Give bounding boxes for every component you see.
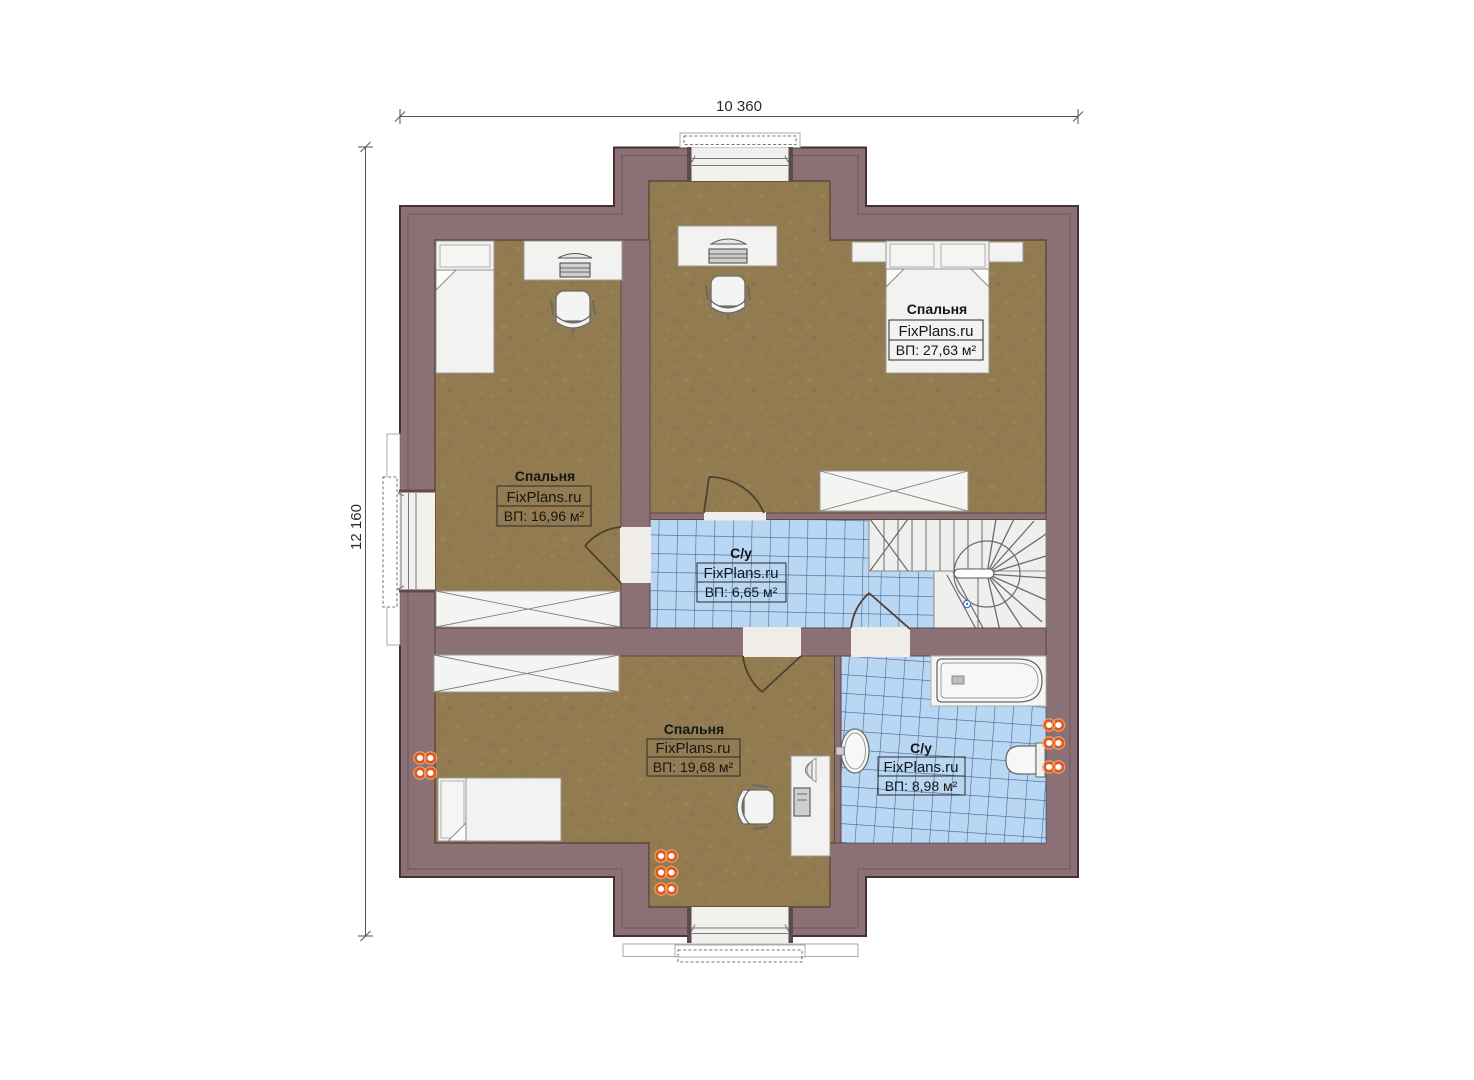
svg-text:ВП: 16,96 м²: ВП: 16,96 м² [504, 508, 585, 524]
svg-text:10 360: 10 360 [716, 98, 762, 115]
svg-text:FixPlans.ru: FixPlans.ru [883, 759, 958, 776]
svg-text:ВП: 27,63 м²: ВП: 27,63 м² [896, 342, 977, 358]
svg-text:ВП: 19,68 м²: ВП: 19,68 м² [653, 759, 734, 775]
svg-text:Спальня: Спальня [907, 301, 967, 317]
svg-text:ВП: 8,98 м²: ВП: 8,98 м² [885, 778, 958, 794]
svg-text:С/у: С/у [910, 740, 932, 756]
svg-text:FixPlans.ru: FixPlans.ru [506, 489, 581, 506]
svg-text:Спальня: Спальня [515, 468, 575, 484]
svg-text:ВП: 6,65 м²: ВП: 6,65 м² [705, 584, 778, 600]
svg-text:С/у: С/у [730, 545, 752, 561]
svg-text:FixPlans.ru: FixPlans.ru [703, 565, 778, 582]
svg-text:FixPlans.ru: FixPlans.ru [898, 323, 973, 340]
svg-text:FixPlans.ru: FixPlans.ru [655, 740, 730, 757]
svg-text:12 160: 12 160 [348, 504, 365, 550]
svg-text:Спальня: Спальня [664, 721, 724, 737]
